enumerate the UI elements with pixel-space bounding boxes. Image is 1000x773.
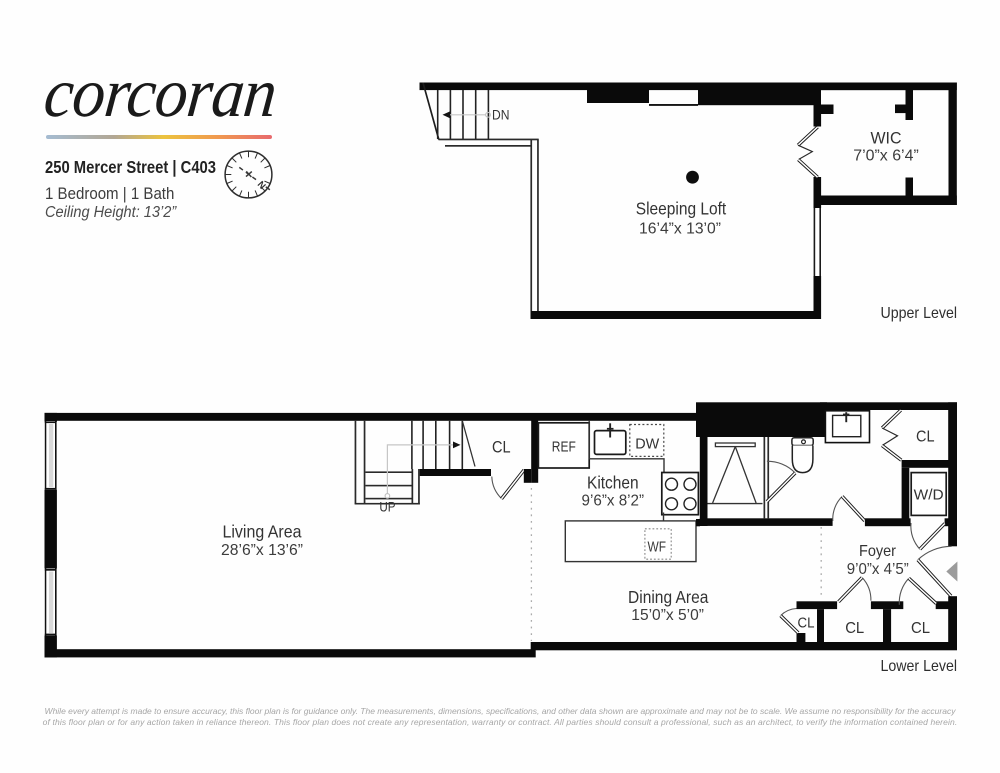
svg-text:9’6”x 8’2”: 9’6”x 8’2” [582, 493, 645, 510]
svg-text:WF: WF [648, 538, 667, 555]
svg-text:WIC: WIC [871, 129, 902, 147]
svg-text:CL: CL [492, 438, 511, 456]
svg-text:Kitchen: Kitchen [587, 472, 639, 492]
svg-text:CL: CL [798, 615, 815, 631]
svg-text:7’0”x 6’4”: 7’0”x 6’4” [853, 147, 919, 164]
svg-text:DW: DW [635, 435, 660, 452]
svg-text:CL: CL [845, 620, 864, 637]
svg-text:15’0”x 5’0”: 15’0”x 5’0” [631, 607, 704, 624]
svg-text:CL: CL [911, 620, 930, 637]
svg-text:Foyer: Foyer [859, 543, 897, 560]
svg-text:DN: DN [492, 106, 510, 122]
svg-text:Lower Level: Lower Level [881, 658, 958, 675]
svg-text:W/D: W/D [914, 487, 944, 504]
svg-text:28’6”x 13’6”: 28’6”x 13’6” [221, 542, 303, 559]
svg-text:16’4”x 13’0”: 16’4”x 13’0” [639, 221, 721, 238]
svg-text:9’0”x 4’5”: 9’0”x 4’5” [847, 561, 909, 578]
svg-text:CL: CL [916, 429, 935, 446]
svg-text:REF: REF [552, 438, 576, 455]
svg-text:Sleeping Loft: Sleeping Loft [636, 198, 727, 218]
svg-text:Dining Area: Dining Area [628, 587, 709, 607]
svg-text:UP: UP [379, 500, 395, 515]
svg-text:Living Area: Living Area [223, 521, 302, 541]
svg-text:Upper Level: Upper Level [881, 305, 958, 322]
